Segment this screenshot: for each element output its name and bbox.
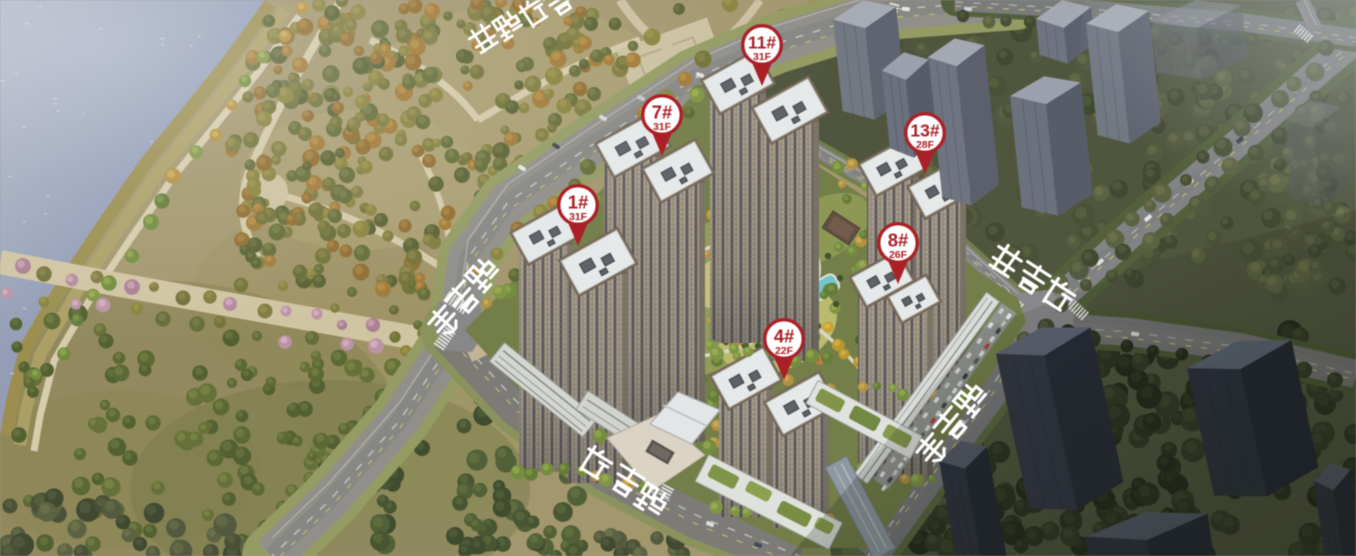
svg-text:13#: 13# — [910, 121, 939, 141]
svg-text:1#: 1# — [568, 192, 589, 213]
svg-text:4#: 4# — [774, 326, 795, 347]
svg-text:31F: 31F — [753, 51, 772, 63]
svg-text:26F: 26F — [889, 249, 908, 261]
svg-text:8#: 8# — [888, 230, 909, 251]
svg-text:31F: 31F — [569, 211, 588, 223]
svg-text:22F: 22F — [775, 345, 794, 357]
svg-text:11#: 11# — [748, 33, 776, 53]
svg-text:7#: 7# — [652, 102, 673, 123]
svg-text:28F: 28F — [916, 139, 935, 151]
svg-text:31F: 31F — [653, 121, 672, 133]
